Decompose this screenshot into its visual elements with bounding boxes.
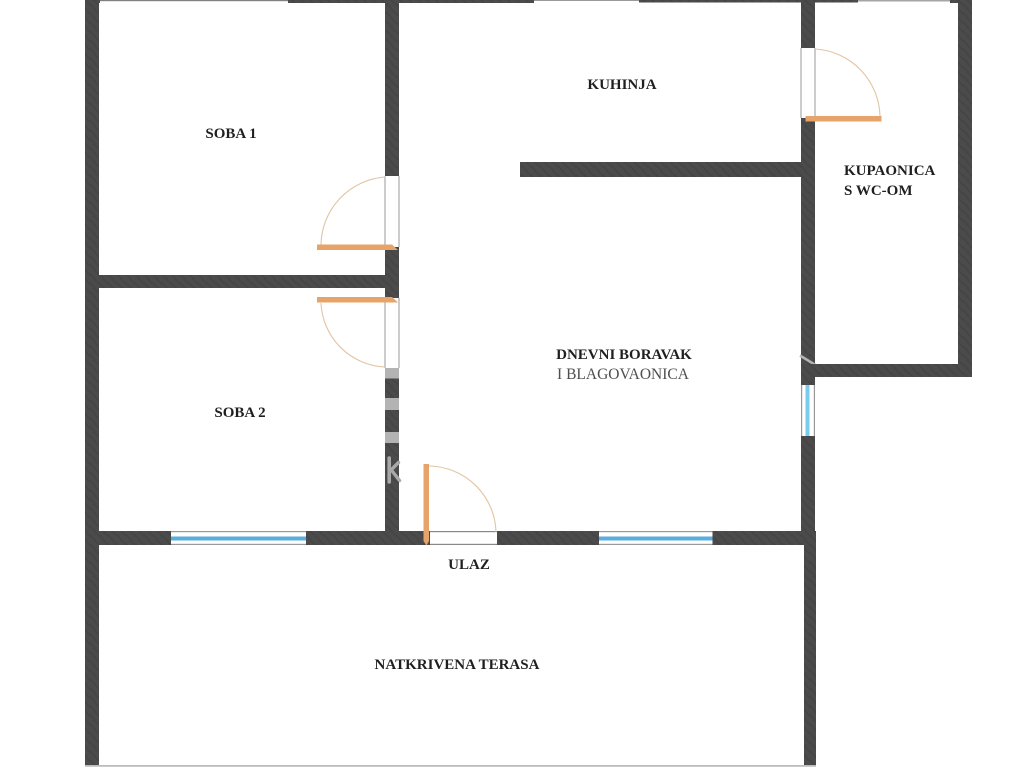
svg-text:DNEVNI BORAVAK: DNEVNI BORAVAK: [556, 347, 692, 363]
svg-text:KUHINJA: KUHINJA: [587, 77, 656, 93]
svg-text:NATKRIVENA TERASA: NATKRIVENA TERASA: [375, 657, 540, 673]
svg-text:I BLAGOVAONICA: I BLAGOVAONICA: [557, 366, 690, 383]
svg-text:S WC-OM: S WC-OM: [844, 183, 912, 199]
svg-text:KUPAONICA: KUPAONICA: [844, 163, 936, 179]
svg-text:ULAZ: ULAZ: [448, 557, 490, 573]
svg-text:SOBA 2: SOBA 2: [214, 405, 265, 421]
svg-text:SOBA 1: SOBA 1: [205, 126, 256, 142]
